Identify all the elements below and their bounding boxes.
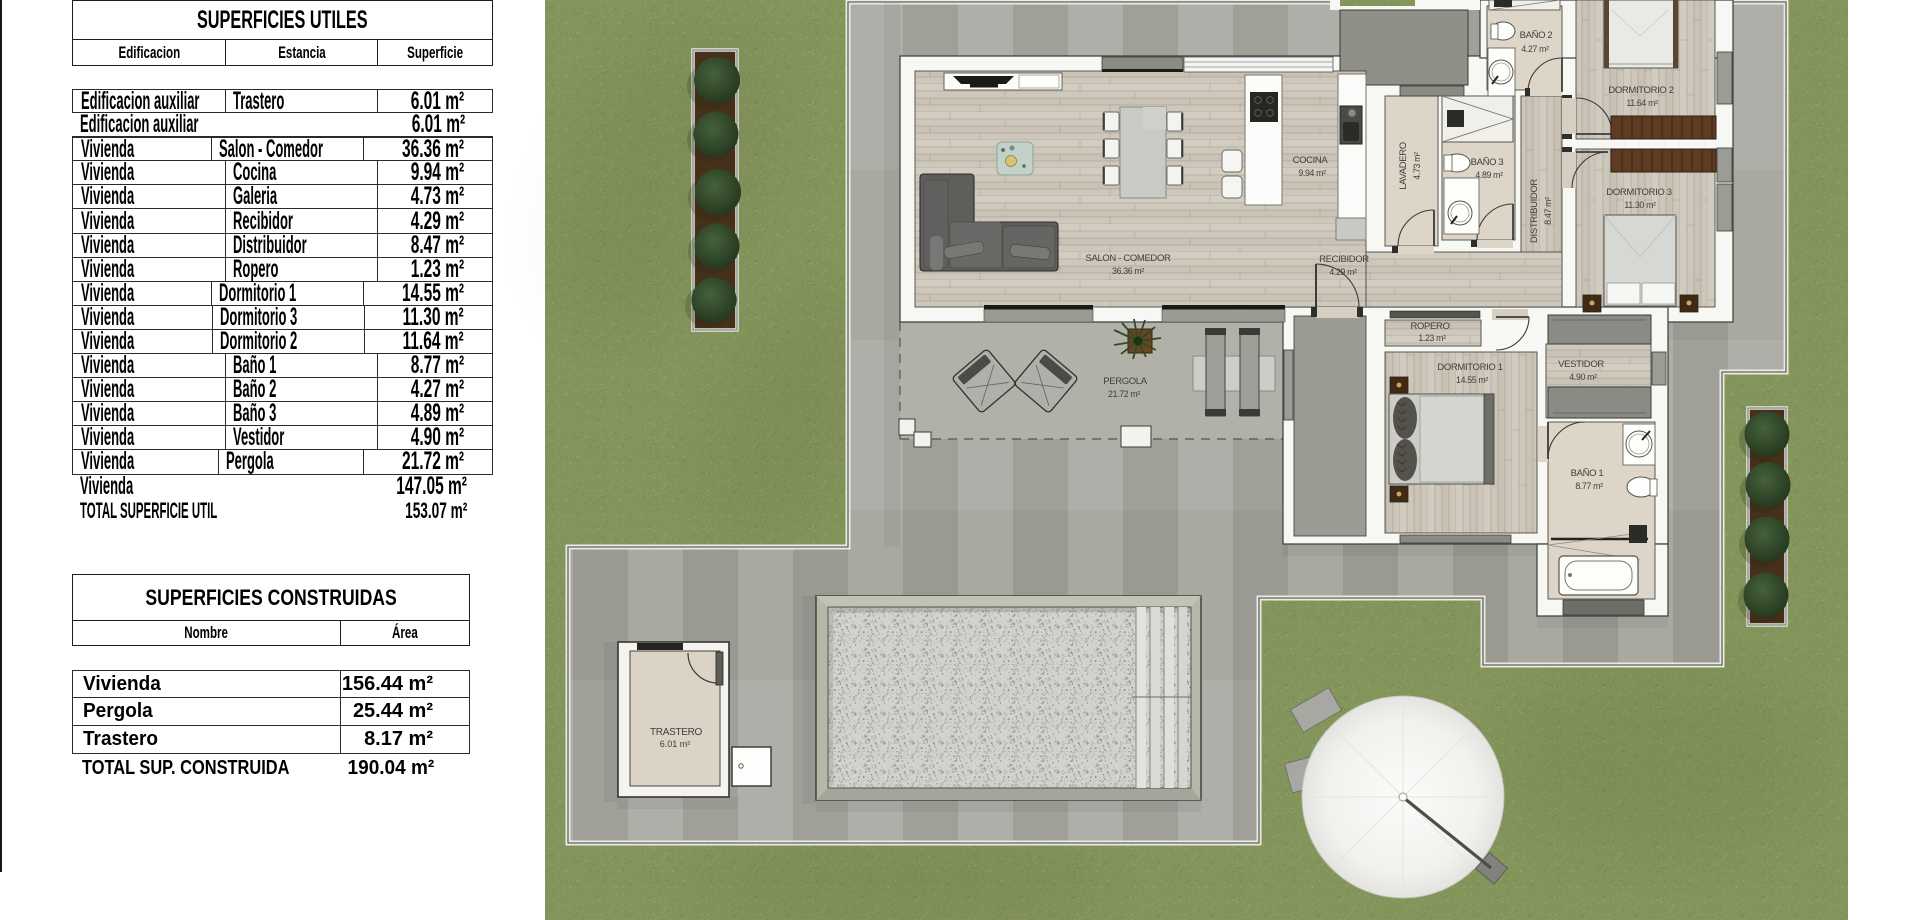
svg-text:8.77 m²: 8.77 m² (1575, 481, 1603, 491)
svg-text:1.23 m²: 1.23 m² (1418, 333, 1446, 343)
svg-text:4.89 m²: 4.89 m² (1475, 170, 1503, 180)
svg-text:8.47 m²: 8.47 m² (1543, 197, 1553, 225)
svg-text:DORMITORIO 2: DORMITORIO 2 (1608, 85, 1673, 96)
svg-text:PERGOLA: PERGOLA (1103, 376, 1147, 387)
svg-text:DORMITORIO 1: DORMITORIO 1 (1437, 362, 1502, 373)
svg-text:DORMITORIO 3: DORMITORIO 3 (1606, 187, 1671, 198)
svg-text:ROPERO: ROPERO (1410, 321, 1449, 332)
svg-text:11.64 m²: 11.64 m² (1626, 98, 1658, 108)
svg-text:9.94 m²: 9.94 m² (1298, 168, 1326, 178)
svg-text:6.01 m²: 6.01 m² (660, 739, 691, 749)
svg-text:4.29 m²: 4.29 m² (1329, 267, 1357, 277)
svg-text:BAÑO 2: BAÑO 2 (1520, 30, 1553, 41)
svg-text:21.72 m²: 21.72 m² (1108, 389, 1140, 399)
svg-text:14.55 m²: 14.55 m² (1456, 375, 1488, 385)
svg-text:TRASTERO: TRASTERO (650, 727, 703, 738)
svg-text:COCINA: COCINA (1293, 155, 1329, 166)
svg-text:36.36 m²: 36.36 m² (1112, 266, 1144, 276)
svg-text:DISTRIBUIDOR: DISTRIBUIDOR (1529, 179, 1540, 243)
svg-text:4.90 m²: 4.90 m² (1569, 372, 1597, 382)
svg-text:SALON - COMEDOR: SALON - COMEDOR (1085, 253, 1170, 264)
svg-text:VESTIDOR: VESTIDOR (1558, 359, 1604, 370)
svg-text:4.73 m²: 4.73 m² (1412, 152, 1422, 180)
svg-text:LAVADERO: LAVADERO (1398, 142, 1409, 190)
svg-text:BAÑO 1: BAÑO 1 (1571, 468, 1604, 479)
svg-text:11.30 m²: 11.30 m² (1624, 200, 1656, 210)
svg-text:BAÑO 3: BAÑO 3 (1471, 157, 1504, 168)
svg-text:RECIBIDOR: RECIBIDOR (1319, 254, 1369, 265)
svg-text:4.27 m²: 4.27 m² (1521, 44, 1549, 54)
